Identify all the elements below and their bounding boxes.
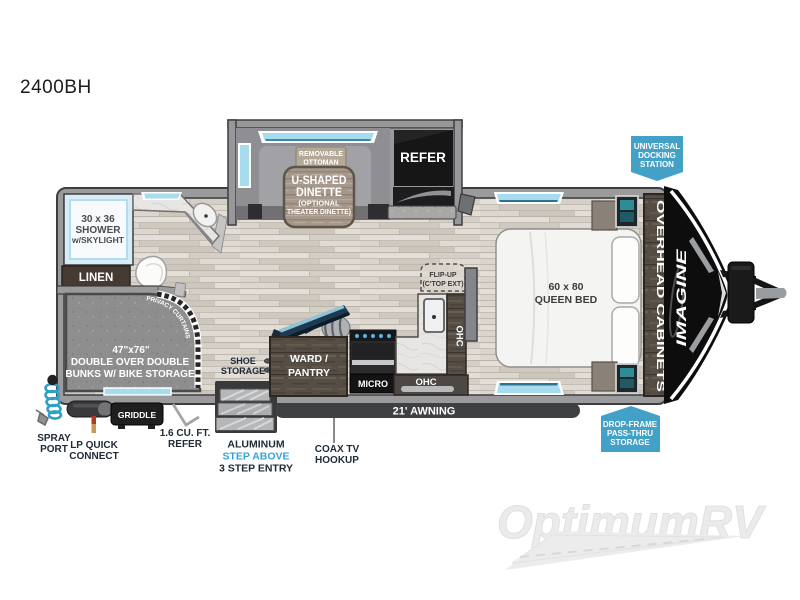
svg-text:30 x 36: 30 x 36	[81, 214, 115, 225]
svg-text:3 STEP ENTRY: 3 STEP ENTRY	[219, 463, 293, 475]
svg-text:w/SKYLIGHT: w/SKYLIGHT	[71, 235, 125, 245]
svg-text:47"x76": 47"x76"	[112, 345, 150, 356]
svg-text:FLIP-UP: FLIP-UP	[429, 272, 457, 279]
svg-text:DOCKING: DOCKING	[638, 151, 676, 160]
svg-text:U-SHAPED: U-SHAPED	[292, 175, 347, 187]
svg-text:OHC: OHC	[454, 325, 465, 346]
svg-text:REFER: REFER	[168, 439, 203, 450]
svg-text:LP QUICK: LP QUICK	[70, 440, 118, 451]
svg-text:HOOKUP: HOOKUP	[315, 455, 359, 466]
svg-text:REMOVABLE: REMOVABLE	[299, 151, 344, 158]
svg-text:ALUMINUM: ALUMINUM	[227, 439, 284, 451]
svg-text:OTTOMAN: OTTOMAN	[303, 160, 338, 167]
svg-text:DROP-FRAME: DROP-FRAME	[603, 420, 658, 429]
svg-text:COAX TV: COAX TV	[315, 444, 360, 455]
svg-text:BUNKS W/ BIKE STORAGE: BUNKS W/ BIKE STORAGE	[65, 369, 195, 380]
svg-text:DOUBLE OVER DOUBLE: DOUBLE OVER DOUBLE	[71, 357, 190, 368]
svg-text:SHOE: SHOE	[230, 356, 256, 366]
svg-text:2400BH: 2400BH	[20, 77, 92, 98]
svg-text:LINEN: LINEN	[79, 272, 114, 284]
svg-text:21' AWNING: 21' AWNING	[393, 406, 456, 418]
svg-text:WARD /: WARD /	[290, 353, 328, 365]
svg-text:CONNECT: CONNECT	[69, 451, 118, 462]
svg-text:(C'TOP EXT): (C'TOP EXT)	[422, 281, 463, 288]
svg-text:PASS-THRU: PASS-THRU	[607, 429, 653, 438]
svg-text:IMAGINE: IMAGINE	[673, 248, 689, 346]
svg-text:STORAGE: STORAGE	[610, 438, 650, 447]
svg-text:1.6 CU. FT.: 1.6 CU. FT.	[160, 428, 211, 439]
svg-text:REFER: REFER	[400, 150, 446, 165]
svg-text:STATION: STATION	[640, 160, 674, 169]
svg-text:UNIVERSAL: UNIVERSAL	[634, 142, 680, 151]
svg-text:QUEEN BED: QUEEN BED	[535, 294, 598, 306]
svg-text:PANTRY: PANTRY	[288, 367, 330, 379]
svg-text:SPRAY: SPRAY	[37, 433, 71, 444]
svg-text:DINETTE: DINETTE	[296, 187, 342, 199]
svg-text:THEATER DINETTE): THEATER DINETTE)	[287, 207, 351, 216]
svg-text:STORAGE: STORAGE	[221, 366, 265, 376]
svg-text:GRIDDLE: GRIDDLE	[118, 410, 157, 420]
svg-text:STEP ABOVE: STEP ABOVE	[222, 451, 289, 463]
svg-text:PORT: PORT	[40, 444, 68, 455]
svg-text:60 x 80: 60 x 80	[548, 281, 583, 293]
svg-text:MICRO: MICRO	[358, 379, 388, 389]
